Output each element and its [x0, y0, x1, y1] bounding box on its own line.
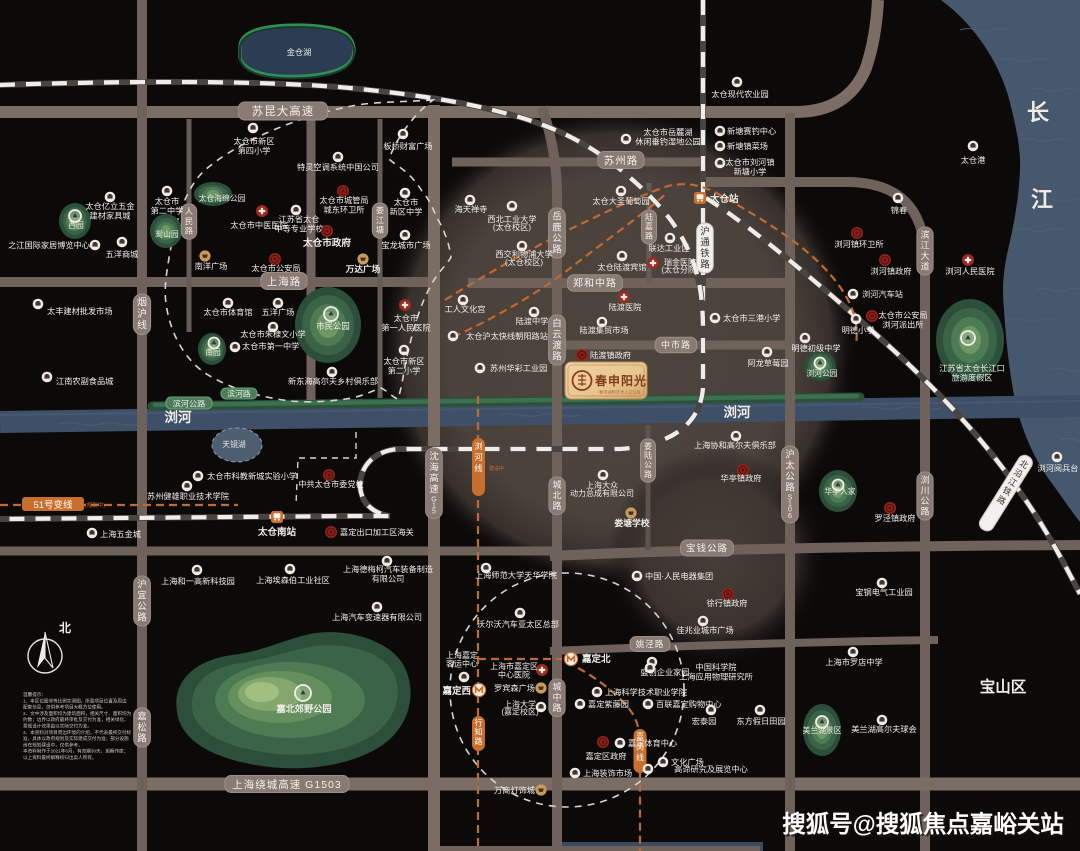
svg-text:太仓港: 太仓港 [961, 155, 986, 165]
svg-text:娄: 娄 [644, 441, 652, 451]
svg-text:太仓市新区第四小学: 太仓市新区第四小学 [234, 136, 275, 156]
svg-text:阿龙草莓园: 阿龙草莓园 [748, 358, 789, 368]
svg-text:太仓市朱棣文小学: 太仓市朱棣文小学 [240, 329, 306, 339]
svg-text:宝钢电气工业园: 宝钢电气工业园 [855, 587, 912, 597]
svg-text:上海装饰市场: 上海装饰市场 [583, 768, 632, 778]
svg-text:浏河汽车站: 浏河汽车站 [862, 289, 903, 299]
svg-text:中: 中 [552, 691, 561, 702]
svg-text:金仓湖: 金仓湖 [287, 47, 312, 57]
svg-text:浏河人民医院: 浏河人民医院 [945, 266, 994, 276]
svg-text:塘: 塘 [376, 225, 384, 235]
svg-text:太仓现代农业园: 太仓现代农业园 [711, 89, 768, 99]
svg-text:道: 道 [920, 260, 929, 271]
svg-text:上海大学(嘉定校区): 上海大学(嘉定校区) [501, 699, 539, 717]
svg-text:大: 大 [920, 250, 929, 261]
svg-text:城: 城 [552, 682, 561, 692]
svg-text:路: 路 [645, 231, 653, 241]
svg-text:海天禅寺: 海天禅寺 [455, 204, 488, 214]
svg-text:联达工业区: 联达工业区 [649, 243, 690, 253]
svg-text:以上资料最终解释权归出卖人所有。: 以上资料最终解释权归出卖人所有。 [23, 754, 97, 761]
svg-text:嘉定北: 嘉定北 [581, 653, 611, 665]
svg-text:沈: 沈 [429, 450, 439, 462]
svg-text:太仓市第二中学: 太仓市第二中学 [151, 196, 184, 216]
svg-text:罗泾镇政府: 罗泾镇政府 [875, 513, 916, 523]
svg-text:沪: 沪 [785, 448, 795, 460]
svg-text:尚在规划建设中，仅供参考。: 尚在规划建设中，仅供参考。 [23, 741, 83, 748]
svg-text:嘉: 嘉 [137, 710, 147, 722]
svg-text:苏昆大高速: 苏昆大高速 [252, 104, 315, 118]
svg-text:浏河公园: 浏河公园 [806, 368, 837, 378]
svg-text:太仓市三港小学: 太仓市三港小学 [723, 313, 780, 323]
svg-text:浏河: 浏河 [724, 404, 752, 420]
svg-text:陆渡医院: 陆渡医院 [609, 302, 642, 312]
svg-text:人: 人 [185, 207, 193, 216]
svg-text:上海科学技术职业学院: 上海科学技术职业学院 [605, 687, 687, 697]
svg-text:上海协和高尔夫俱乐部: 上海协和高尔夫俱乐部 [694, 440, 776, 450]
svg-text:太仓市新区中学: 太仓市新区中学 [390, 197, 423, 217]
svg-text:五洋广场: 五洋广场 [262, 307, 295, 317]
svg-text:浏河: 浏河 [165, 409, 192, 425]
svg-text:陆渡中学: 陆渡中学 [516, 316, 549, 326]
svg-text:中国·人民电器集团: 中国·人民电器集团 [645, 571, 713, 581]
svg-text:温馨提示：: 温馨提示： [23, 691, 46, 698]
svg-text:上海五金城: 上海五金城 [100, 529, 141, 539]
svg-text:路: 路 [137, 611, 147, 623]
svg-text:太仓市政府: 太仓市政府 [302, 237, 351, 249]
svg-text:路: 路 [475, 736, 483, 746]
svg-text:路: 路 [920, 505, 929, 516]
svg-text:上海埃森伯工业社区: 上海埃森伯工业社区 [256, 575, 330, 585]
svg-text:太: 太 [785, 459, 795, 471]
svg-text:准，具体以政府规划及实际建成交付为准；部分设施: 准，具体以政府规划及实际建成交付为准；部分设施 [23, 735, 129, 742]
svg-text:高: 高 [429, 472, 439, 484]
svg-text:陆: 陆 [645, 212, 653, 222]
svg-text:罗宾森广场: 罗宾森广场 [494, 683, 535, 693]
svg-text:云: 云 [552, 329, 562, 340]
svg-text:路: 路 [552, 702, 561, 713]
svg-text:市民公园: 市民公园 [316, 321, 350, 331]
svg-text:东方假日田园: 东方假日田园 [736, 716, 785, 726]
svg-text:苏州华彩工业园: 苏州华彩工业园 [490, 363, 547, 373]
svg-text:路: 路 [700, 258, 710, 270]
svg-text:太仓市新区第二小学: 太仓市新区第二小学 [384, 356, 425, 376]
svg-text:陆: 陆 [644, 450, 652, 460]
svg-text:板桥财富广场: 板桥财富广场 [383, 141, 432, 151]
svg-text:海: 海 [429, 461, 439, 473]
svg-text:通: 通 [700, 237, 710, 248]
svg-text:上海路: 上海路 [267, 275, 302, 288]
svg-text:城: 城 [552, 480, 561, 490]
svg-text:苏州路: 苏州路 [604, 154, 639, 167]
svg-text:公: 公 [785, 471, 795, 482]
svg-text:宝山区: 宝山区 [980, 677, 1027, 696]
svg-text:线: 线 [137, 319, 147, 332]
svg-text:(规划中): (规划中) [85, 501, 105, 509]
svg-text:宏泰园: 宏泰园 [692, 716, 717, 726]
svg-text:沪: 沪 [137, 307, 147, 320]
svg-text:建设中: 建设中 [489, 465, 504, 472]
svg-text:太仓市岳麓湖休闲垂钓湿地公园: 太仓市岳麓湖休闲垂钓湿地公园 [635, 127, 701, 147]
svg-text:嘉北郊野公园: 嘉北郊野公园 [275, 703, 331, 714]
svg-text:行: 行 [475, 718, 483, 728]
svg-text:铁: 铁 [700, 247, 710, 259]
svg-text:嘉定体育中心: 嘉定体育中心 [628, 738, 677, 748]
svg-text:嘉: 嘉 [645, 221, 653, 231]
svg-text:太仓亿立五金建材家具城: 太仓亿立五金建材家具城 [85, 201, 134, 221]
svg-text:沪: 沪 [700, 225, 710, 237]
svg-text:渡: 渡 [552, 339, 562, 351]
svg-text:北: 北 [552, 490, 561, 500]
svg-text:明德小学: 明德小学 [842, 325, 875, 335]
svg-text:6: 6 [788, 513, 792, 520]
svg-text:本资料制作于2021年6月，有效期30天，逾期作废；: 本资料制作于2021年6月，有效期30天，逾期作废； [23, 748, 128, 755]
svg-text:徐行镇政府: 徐行镇政府 [707, 598, 748, 608]
svg-text:路: 路 [185, 226, 193, 236]
svg-text:万达广场: 万达广场 [345, 263, 381, 274]
svg-text:约数；边界以政府最终审批及交付为准，相关绿化、: 约数；边界以政府最终审批及交付为准，相关绿化、 [23, 716, 129, 723]
svg-text:太仓市城管局城东环卫所: 太仓市城管局城东环卫所 [319, 195, 368, 215]
svg-text:上海师范大学天华学院: 上海师范大学天华学院 [475, 570, 557, 580]
svg-text:新塘镇菜场: 新塘镇菜场 [727, 141, 768, 151]
svg-text:5: 5 [432, 509, 436, 516]
svg-text:陆渡镇政府: 陆渡镇政府 [590, 350, 631, 360]
svg-text:滨河公路: 滨河公路 [173, 399, 206, 409]
svg-text:南洋广场: 南洋广场 [195, 261, 228, 271]
svg-text:娄塘学校: 娄塘学校 [613, 517, 649, 528]
svg-text:公: 公 [644, 461, 652, 470]
svg-text:姚泾路: 姚泾路 [636, 639, 665, 649]
svg-text:苏州健雄职业技术学院: 苏州健雄职业技术学院 [147, 491, 229, 501]
svg-text:江苏省太仓中等专业学校: 江苏省太仓中等专业学校 [274, 214, 323, 234]
svg-text:路: 路 [644, 469, 652, 479]
svg-text:郑和中路: 郑和中路 [573, 277, 617, 290]
svg-text:上海和一高新科技园: 上海和一高新科技园 [161, 576, 235, 586]
svg-text:上海嘉定客运中心: 上海嘉定客运中心 [446, 650, 478, 669]
svg-text:沃尔沃汽车亚太区总部: 沃尔沃汽车亚太区总部 [477, 619, 559, 629]
svg-text:线: 线 [636, 752, 644, 762]
svg-text:2、文中涉及面积均为建筑面积，相关尺寸、面积均为: 2、文中涉及面积均为建筑面积，相关尺寸、面积均为 [23, 710, 132, 717]
svg-text:嘉定区政府: 嘉定区政府 [586, 751, 627, 761]
svg-text:陆渡集贸市场: 陆渡集贸市场 [579, 325, 628, 335]
svg-text:佳兆业城市广场: 佳兆业城市广场 [676, 625, 733, 635]
svg-text:浏河镇环卫所: 浏河镇环卫所 [834, 239, 883, 249]
svg-text:宝钱公路: 宝钱公路 [686, 542, 728, 554]
svg-text:太仓海绵公园: 太仓海绵公园 [199, 193, 246, 203]
svg-text:江南农副食品城: 江南农副食品城 [56, 376, 113, 386]
svg-text:速: 速 [429, 484, 439, 495]
svg-text:公: 公 [920, 496, 929, 506]
svg-text:新塘赛钓中心: 新塘赛钓中心 [727, 126, 776, 136]
svg-text:明德初级中学: 明德初级中学 [791, 343, 840, 353]
svg-text:工人文化宫: 工人文化宫 [445, 304, 486, 314]
svg-text:天镜湖: 天镜湖 [222, 439, 246, 449]
svg-text:太仓市公安局浏河派出所: 太仓市公安局浏河派出所 [878, 310, 927, 330]
svg-text:华亭镇政府: 华亭镇政府 [721, 473, 762, 483]
svg-text:烟: 烟 [137, 296, 147, 309]
svg-text:滨: 滨 [920, 229, 929, 240]
svg-text:滨河路: 滨河路 [227, 389, 251, 399]
svg-text:浏河阅兵台: 浏河阅兵台 [1038, 463, 1079, 473]
svg-text:春申阳光: 春申阳光 [594, 373, 647, 388]
svg-text:江: 江 [376, 216, 384, 225]
svg-text:五洋商城: 五洋商城 [106, 249, 139, 259]
svg-text:路: 路 [137, 732, 147, 744]
svg-text:美兰湖高尔夫球会: 美兰湖高尔夫球会 [851, 724, 917, 734]
svg-text:鹿: 鹿 [552, 221, 562, 233]
svg-text:嘉定紫藤园: 嘉定紫藤园 [588, 699, 629, 709]
svg-text:太仓大圣葡萄园: 太仓大圣葡萄园 [592, 196, 649, 206]
svg-text:太仓市公安局: 太仓市公安局 [251, 263, 300, 273]
svg-text:娄: 娄 [376, 205, 384, 215]
svg-text:公: 公 [137, 601, 147, 612]
svg-text:上海绕城高速 G1503: 上海绕城高速 G1503 [232, 778, 341, 791]
svg-text:太仓市科教新城实验小学: 太仓市科教新城实验小学 [207, 471, 297, 481]
svg-text:嘉定出口加工区海关: 嘉定出口加工区海关 [340, 527, 414, 537]
svg-text:白: 白 [552, 317, 562, 329]
svg-text:西北工业大学(太仓校区): 西北工业大学(太仓校区) [487, 214, 536, 232]
svg-text:太仓南站: 太仓南站 [258, 526, 297, 538]
svg-text:民: 民 [185, 217, 193, 226]
svg-text:宜: 宜 [137, 589, 147, 601]
svg-text:瑞金医院(太仓分院): 瑞金医院(太仓分院) [661, 257, 699, 275]
svg-text:江: 江 [920, 240, 929, 250]
svg-text:岳: 岳 [552, 210, 562, 222]
svg-text:之江国际家居博览中心: 之江国际家居博览中心 [8, 240, 90, 250]
svg-text:上海市罗店中学: 上海市罗店中学 [825, 657, 882, 667]
svg-text:特灵空调系统中国公司: 特灵空调系统中国公司 [297, 162, 379, 172]
svg-text:浏: 浏 [474, 441, 482, 451]
svg-text:浏: 浏 [920, 474, 929, 485]
svg-text:路: 路 [552, 243, 562, 255]
svg-text:沪: 沪 [137, 578, 147, 590]
svg-text:浏河镇政府: 浏河镇政府 [871, 266, 912, 276]
svg-text:知: 知 [475, 727, 483, 737]
svg-text:路: 路 [785, 481, 795, 493]
svg-text:51号变线: 51号变线 [33, 499, 73, 511]
svg-text:中共太仓市委党校: 中共太仓市委党校 [298, 479, 364, 489]
svg-text:太丰建材批发市场: 太丰建材批发市场 [47, 306, 113, 316]
svg-text:太仓市第一中学: 太仓市第一中学 [242, 341, 299, 351]
svg-text:太仓陆渡宾馆: 太仓陆渡宾馆 [597, 262, 646, 272]
svg-text:松: 松 [137, 721, 147, 733]
svg-text:锦春: 锦春 [891, 205, 907, 215]
svg-text:河: 河 [474, 452, 482, 462]
svg-text:太仓沪太快线朝阳路站: 太仓沪太快线朝阳路站 [466, 331, 548, 341]
svg-text:宝龙城市广场: 宝龙城市广场 [381, 240, 430, 250]
svg-text:搜狐号@搜狐焦点嘉峪关站: 搜狐号@搜狐焦点嘉峪关站 [782, 810, 1063, 837]
svg-text:太仓站: 太仓站 [710, 193, 739, 205]
svg-text:万商灯饰城: 万商灯饰城 [494, 785, 535, 795]
svg-text:上海汽车变速器有限公司: 上海汽车变速器有限公司 [332, 612, 422, 622]
svg-text:线: 线 [474, 463, 482, 473]
svg-text:长: 长 [1027, 100, 1050, 125]
svg-text:3、本资料对项目周边环境的介绍，不代表最终交付标: 3、本资料对项目周边环境的介绍，不代表最终交付标 [23, 729, 132, 736]
svg-text:配套信息，仅供参考项目大概方位使用。: 配套信息，仅供参考项目大概方位使用。 [23, 704, 106, 711]
svg-text:鸳山园: 鸳山园 [155, 229, 179, 239]
svg-text:公: 公 [552, 233, 562, 244]
svg-text:川: 川 [920, 485, 929, 495]
svg-text:嘉定西: 嘉定西 [441, 685, 471, 697]
svg-text:江: 江 [1031, 187, 1053, 212]
svg-text:路: 路 [552, 500, 561, 511]
svg-text:高谛研究及展览中心: 高谛研究及展览中心 [674, 764, 748, 774]
svg-text:春申湖畔艺术人文住区: 春申湖畔艺术人文住区 [599, 389, 641, 396]
svg-text:路: 路 [552, 350, 562, 362]
svg-text:1、本区位图非等比例实测图，所载项目位置及周边: 1、本区位图非等比例实测图，所载项目位置及周边 [23, 697, 127, 704]
svg-text:太仓市体育馆: 太仓市体育馆 [203, 307, 252, 317]
svg-text:景观设计效果甶以实际交付为准。: 景观设计效果甶以实际交付为准。 [23, 723, 92, 730]
svg-text:中市路: 中市路 [661, 339, 691, 350]
svg-text:新东海高尔夫乡村俱乐部: 新东海高尔夫乡村俱乐部 [288, 376, 378, 386]
svg-text:北: 北 [59, 620, 71, 635]
